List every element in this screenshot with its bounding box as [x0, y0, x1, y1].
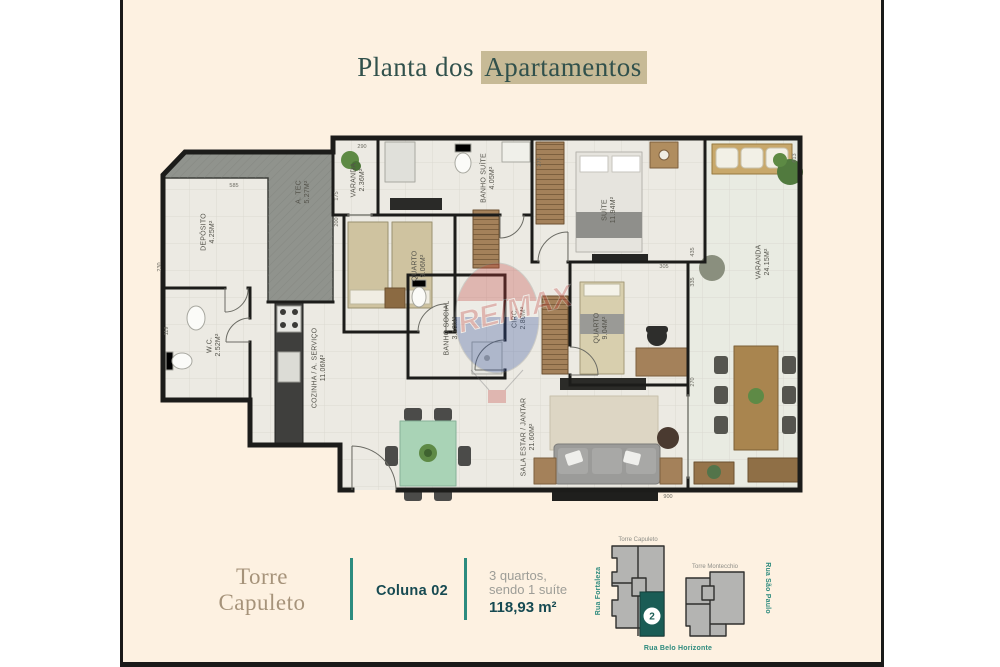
- svg-text:5.27M²: 5.27M²: [304, 180, 311, 203]
- keyplan-street-bottom: Rua Belo Horizonte: [644, 645, 712, 652]
- keyplan-unit-number: 2: [649, 612, 655, 623]
- svg-text:230: 230: [157, 262, 163, 271]
- room-label-suite: SUÍTE 11.94M²: [600, 196, 618, 223]
- svg-text:QUARTO: QUARTO: [412, 250, 419, 281]
- room-label-atec: A. TEC 5.27M²: [296, 180, 312, 204]
- footer-desc-line2: sendo 1 suíte: [489, 583, 567, 597]
- svg-text:SUÍTE: SUÍTE: [600, 199, 609, 221]
- svg-text:DEPÓSITO: DEPÓSITO: [199, 213, 208, 251]
- svg-text:435: 435: [690, 247, 696, 256]
- room-label-quarto2: QUARTO 9.04M²: [594, 312, 610, 343]
- svg-text:VARANDA: VARANDA: [756, 245, 763, 280]
- keyplan: Torre Capuleto Torre Montecchio 2 Rua Fo…: [590, 528, 808, 663]
- svg-text:9.06M²: 9.06M²: [420, 254, 427, 277]
- svg-text:200: 200: [334, 217, 340, 226]
- svg-text:4.05M²: 4.05M²: [489, 166, 496, 189]
- svg-text:275: 275: [537, 157, 543, 166]
- footer-description: 3 quartos, sendo 1 suíte 118,93 m²: [489, 569, 567, 616]
- svg-text:W.C.: W.C.: [207, 337, 214, 353]
- footer-area-value: 118,93 m²: [489, 600, 567, 617]
- svg-text:335: 335: [690, 277, 696, 286]
- room-label-quarto1: QUARTO 9.06M²: [412, 250, 428, 281]
- svg-text:SALA ESTAR / JANTAR: SALA ESTAR / JANTAR: [521, 398, 528, 477]
- room-label-varanda-g: VARANDA 24.15M²: [756, 245, 772, 280]
- svg-text:2.52M²: 2.52M²: [215, 333, 222, 356]
- svg-text:613: 613: [792, 153, 798, 162]
- floor-plan: A. TEC 5.27M² DEPÓSITO 4.25M² W.C. 2.52M…: [0, 0, 1000, 667]
- svg-text:24.15M²: 24.15M²: [764, 248, 771, 276]
- svg-text:2.36M²: 2.36M²: [359, 168, 366, 191]
- svg-text:A. TEC: A. TEC: [296, 180, 303, 204]
- footer-column-label: Coluna 02: [360, 583, 464, 599]
- svg-text:270: 270: [690, 377, 696, 386]
- footer-divider-2: [464, 558, 467, 620]
- svg-text:175: 175: [334, 191, 340, 200]
- svg-text:9.04M²: 9.04M²: [602, 316, 609, 339]
- svg-text:900: 900: [663, 494, 672, 500]
- svg-text:290: 290: [357, 144, 366, 150]
- keyplan-street-right: Rua São Paulo: [764, 562, 771, 614]
- page: Planta dos Apartamentos: [0, 0, 1000, 667]
- keyplan-tower-right-label: Torre Montecchio: [692, 564, 739, 570]
- footer-desc-line1: 3 quartos,: [489, 569, 567, 583]
- svg-text:COZINHA / A. SERVIÇO: COZINHA / A. SERVIÇO: [312, 327, 319, 408]
- keyplan-tower-left-label: Torre Capuleto: [618, 537, 658, 543]
- footer-tower-name: Torre Capuleto: [196, 564, 328, 616]
- svg-text:21.60M²: 21.60M²: [529, 423, 536, 451]
- keyplan-building-right: [686, 572, 744, 636]
- svg-text:119: 119: [164, 327, 170, 336]
- footer-divider-1: [350, 558, 353, 620]
- svg-text:4.25M²: 4.25M²: [209, 220, 216, 243]
- svg-text:305: 305: [659, 264, 668, 270]
- svg-text:VARANDA: VARANDA: [351, 163, 358, 198]
- svg-text:11.06M²: 11.06M²: [320, 354, 327, 381]
- svg-text:BANHO SOCIAL: BANHO SOCIAL: [444, 301, 451, 356]
- svg-text:11.94M²: 11.94M²: [610, 196, 617, 223]
- svg-text:585: 585: [229, 183, 238, 189]
- svg-text:QUARTO: QUARTO: [594, 312, 601, 343]
- svg-text:BANHO SUÍTE: BANHO SUÍTE: [479, 153, 488, 203]
- keyplan-street-left: Rua Fortaleza: [595, 567, 602, 616]
